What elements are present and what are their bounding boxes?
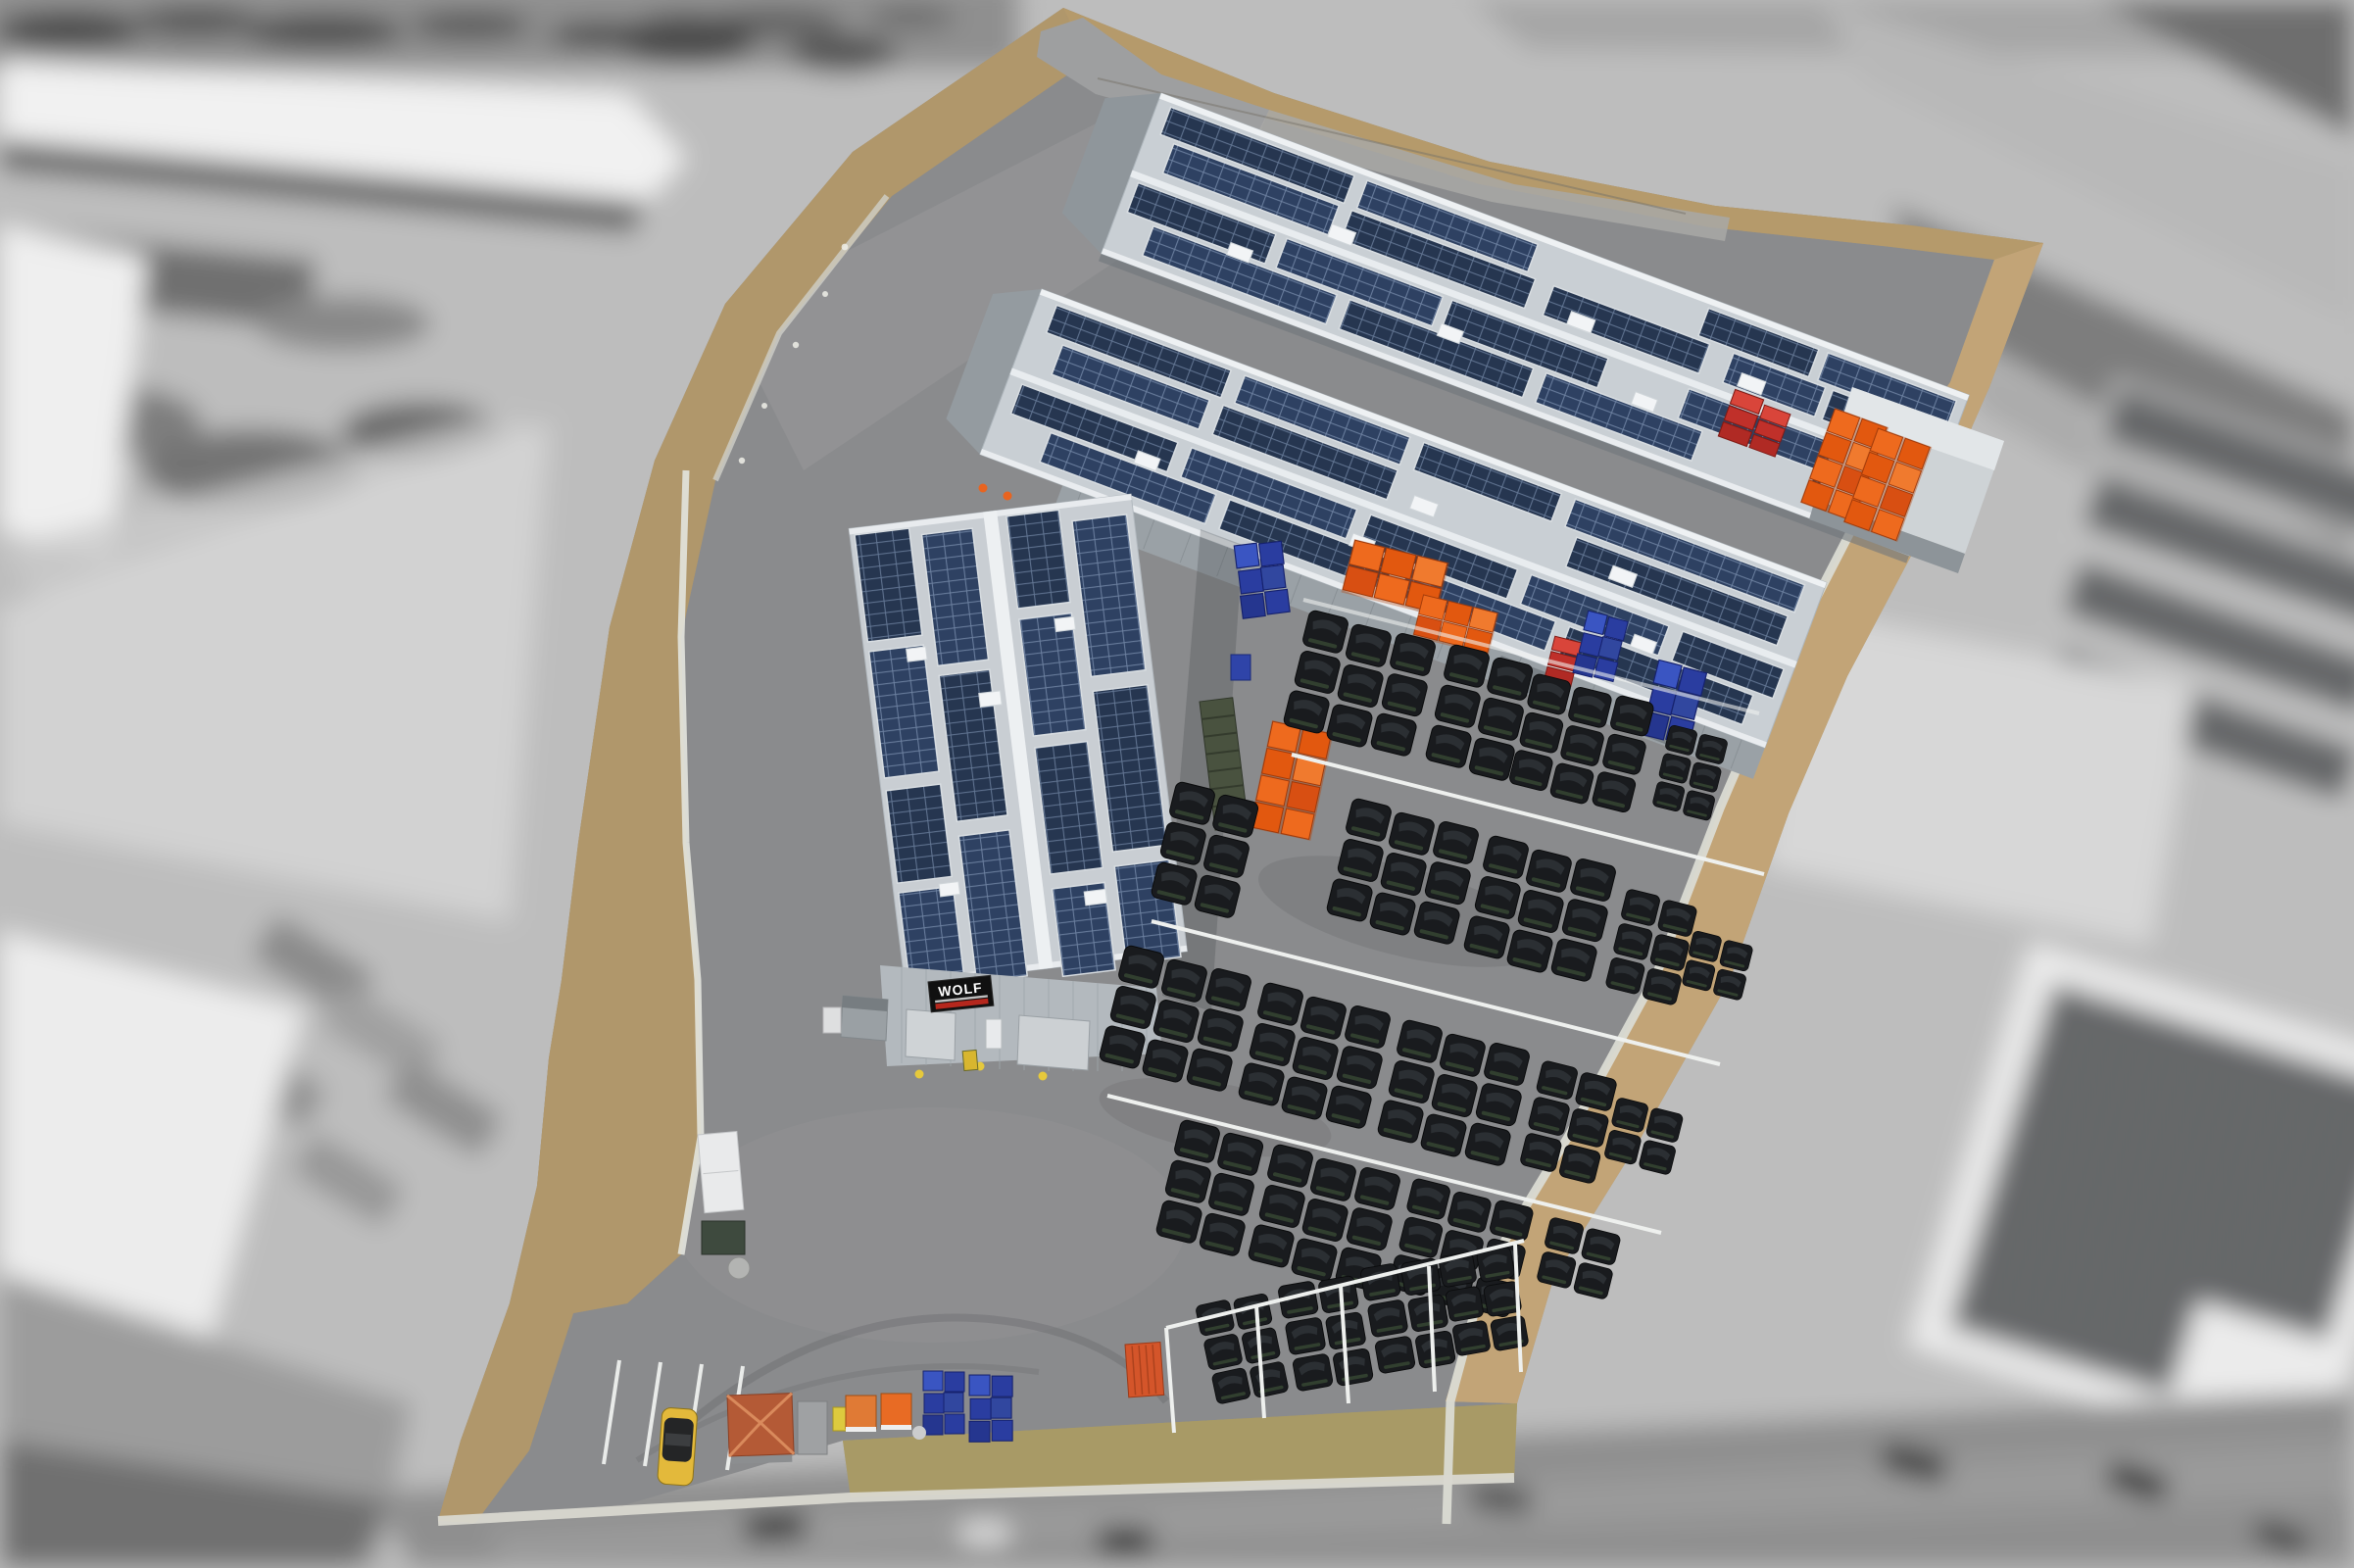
red-roof-hut [727, 1394, 794, 1464]
gray-pallet-pile [798, 1401, 827, 1454]
west-hall [849, 494, 1188, 996]
roller-door [1017, 1015, 1090, 1070]
white-trailer [698, 1132, 744, 1213]
wolf-sign: WOLF [928, 975, 994, 1012]
scene: WOLF [0, 0, 2354, 1568]
traffic-cone [1004, 492, 1012, 501]
white-box [823, 1007, 841, 1033]
bollard [915, 1070, 924, 1079]
yellow-car [658, 1407, 698, 1486]
traffic-cone [979, 484, 988, 493]
bollard [1039, 1072, 1048, 1081]
aerial-photo: WOLF [0, 0, 2354, 1568]
roller-door [906, 1009, 956, 1060]
blue-bin [1231, 655, 1251, 680]
entry-door [986, 1019, 1002, 1049]
yard-worn-patch [676, 1107, 1186, 1343]
green-dumpster [702, 1221, 745, 1254]
round-pile [728, 1257, 750, 1279]
blue-crate-stack [1234, 540, 1290, 618]
orange-container [1125, 1342, 1164, 1396]
hazard-post [962, 1050, 978, 1070]
manhole [912, 1426, 926, 1440]
